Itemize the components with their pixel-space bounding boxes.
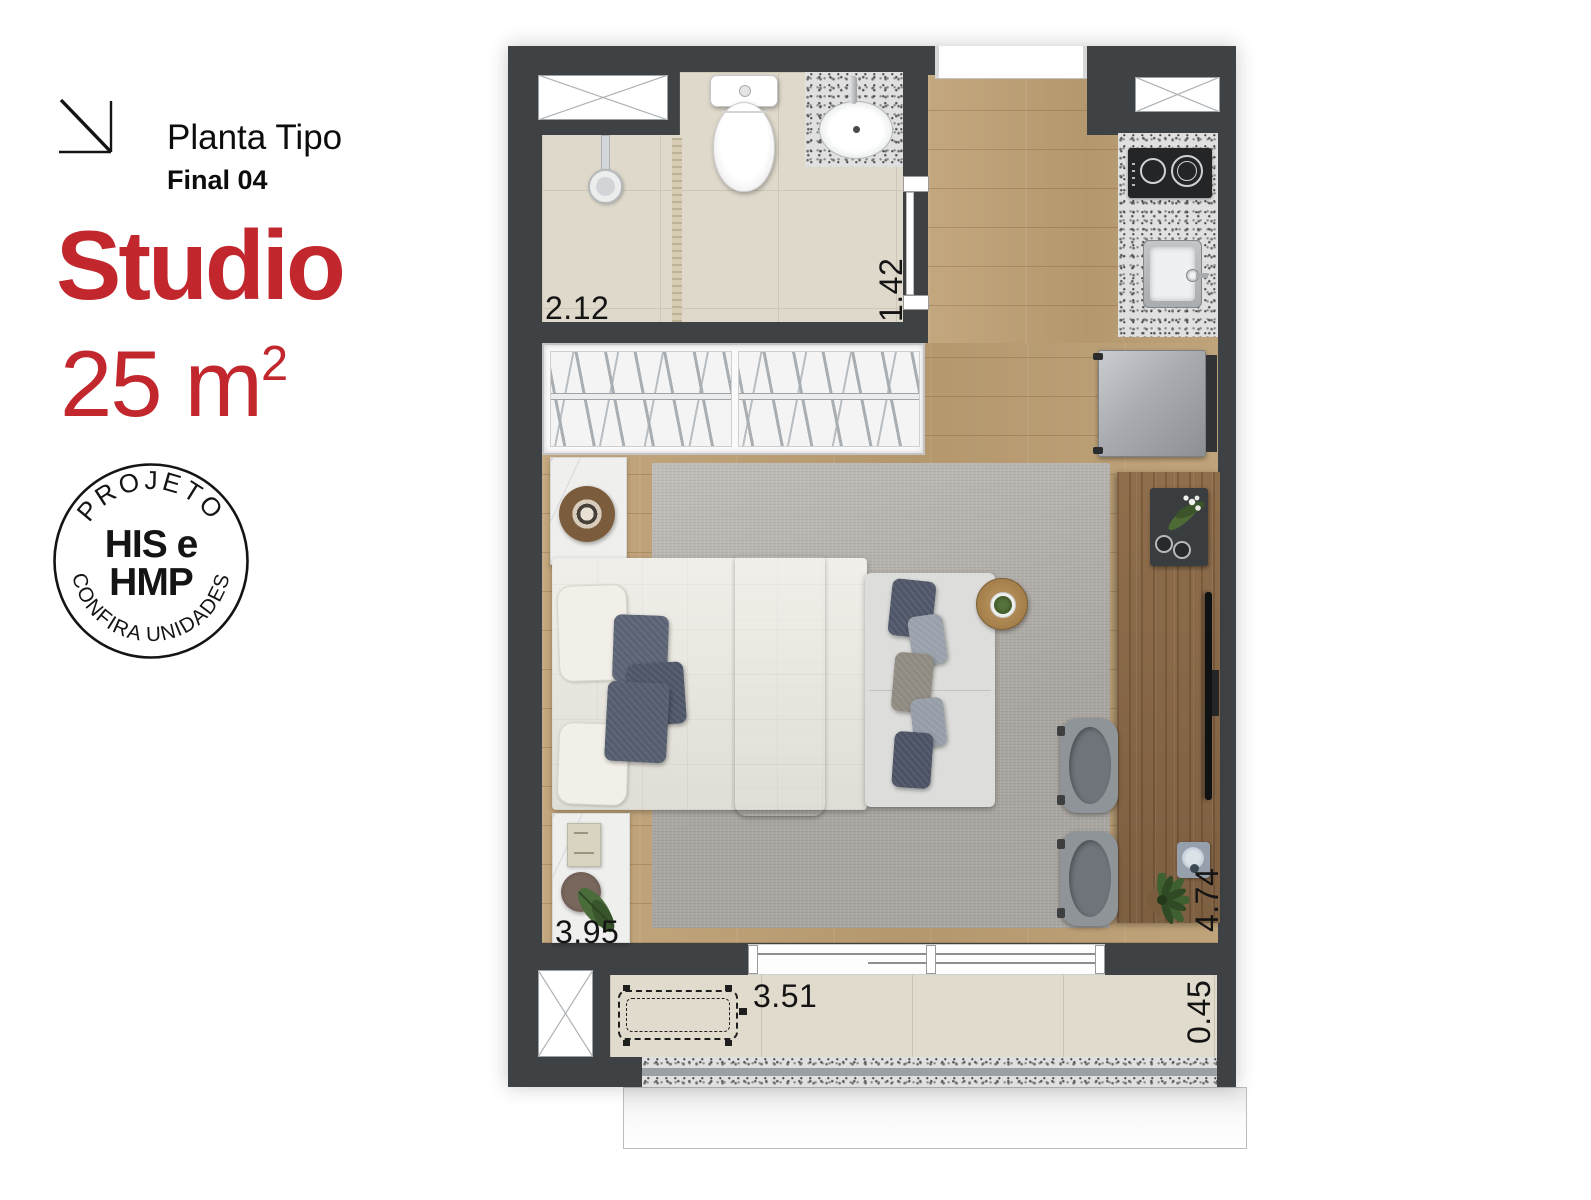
wardrobe-hangers: [550, 351, 732, 447]
round-side-table: [976, 578, 1028, 630]
badge-center-line2: HMP: [109, 561, 193, 604]
wardrobe-hangers: [738, 351, 920, 447]
shower-drain: [672, 138, 682, 322]
fridge-side-panel: [1206, 355, 1217, 452]
tv-mount: [1212, 670, 1219, 716]
bed-pillow-navy: [604, 680, 670, 763]
balcony-edge: [642, 1076, 1217, 1087]
fridge: [1098, 350, 1206, 457]
unit-final-label: Final 04: [167, 165, 268, 196]
duct-shaft-icon: [1135, 77, 1220, 112]
dim-hall-width: 1.42: [873, 252, 910, 322]
table-plant-leaves: [994, 596, 1012, 614]
cooktop-icon: [1128, 148, 1212, 198]
flush-button: [739, 85, 751, 97]
book-title-line: [574, 832, 588, 834]
shower-head-disc: [596, 177, 615, 196]
duct-shaft-icon: [538, 970, 593, 1057]
duct-shaft-icon: [538, 75, 668, 120]
area-value: 25 m: [60, 331, 261, 436]
unit-type-title: Studio: [56, 212, 343, 320]
cooktop-controls: [1132, 160, 1135, 186]
book-title-line: [574, 852, 594, 854]
dim-balcony-depth: 0.45: [1181, 974, 1218, 1044]
corner-arrow-icon: [58, 98, 116, 160]
plan-type-title: Planta Tipo: [167, 118, 342, 158]
kitchen-sink-icon: [1143, 240, 1202, 308]
sliding-window: [748, 944, 1105, 975]
entry-door-opening: [935, 46, 1087, 79]
balcony-bench-outline: [618, 990, 738, 1040]
tv: [1205, 592, 1212, 800]
book: [567, 823, 601, 867]
dim-bathroom-width: 2.12: [545, 290, 609, 327]
fridge-hinge: [1093, 447, 1103, 454]
stool: [1060, 718, 1118, 813]
wardrobe: [542, 343, 925, 455]
shower-head: [588, 169, 623, 204]
door-jamb: [903, 176, 929, 192]
bed-runner: [735, 556, 825, 816]
his-hmp-badge: PROJETO HIS e HMP CONFIRA UNIDADES: [52, 462, 250, 660]
unit-area-label: 25 m2: [60, 332, 286, 435]
toilet-seat-line: [722, 111, 767, 113]
faucet-arm: [1196, 273, 1208, 278]
dim-room-length: 4.74: [1189, 862, 1226, 932]
badge-center-line1: HIS e: [105, 523, 198, 566]
sofa-pillow: [891, 731, 934, 790]
lower-slab: [623, 1087, 1247, 1149]
dim-room-width: 3.95: [555, 914, 619, 951]
basin-drain: [853, 126, 860, 133]
stool: [1060, 831, 1118, 926]
shower-head: [601, 135, 610, 171]
bathroom-sink-counter: [805, 72, 903, 167]
floorplan: 2.12 1.42 3.95 4.74 3.51 0.45: [505, 40, 1253, 1160]
dim-balcony-width: 3.51: [753, 978, 817, 1015]
woven-basket: [559, 486, 615, 542]
potted-plant: [1135, 873, 1189, 927]
balcony-edge: [642, 1057, 1217, 1068]
balcony-edge-gap: [642, 1068, 1217, 1076]
decor-tray: [1150, 488, 1208, 566]
fridge-hinge: [1093, 353, 1103, 360]
faucet-icon: [850, 76, 857, 104]
toilet-bowl: [713, 102, 775, 192]
area-exponent: 2: [261, 337, 286, 391]
